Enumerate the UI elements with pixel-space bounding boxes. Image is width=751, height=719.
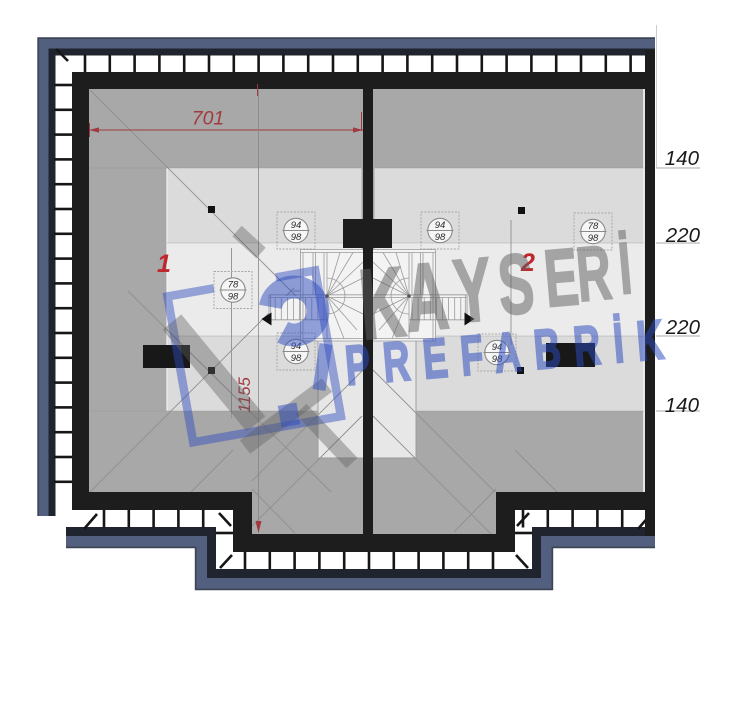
svg-text:98: 98 (291, 232, 302, 243)
svg-text:701: 701 (192, 108, 225, 130)
svg-text:140: 140 (665, 147, 700, 170)
svg-text:98: 98 (228, 292, 239, 303)
svg-text:94: 94 (435, 220, 446, 231)
svg-text:98: 98 (291, 353, 302, 364)
svg-text:78: 78 (228, 280, 239, 291)
svg-text:220: 220 (665, 224, 701, 247)
svg-text:1: 1 (157, 250, 171, 278)
svg-text:94: 94 (291, 220, 302, 231)
svg-text:140: 140 (665, 394, 700, 417)
